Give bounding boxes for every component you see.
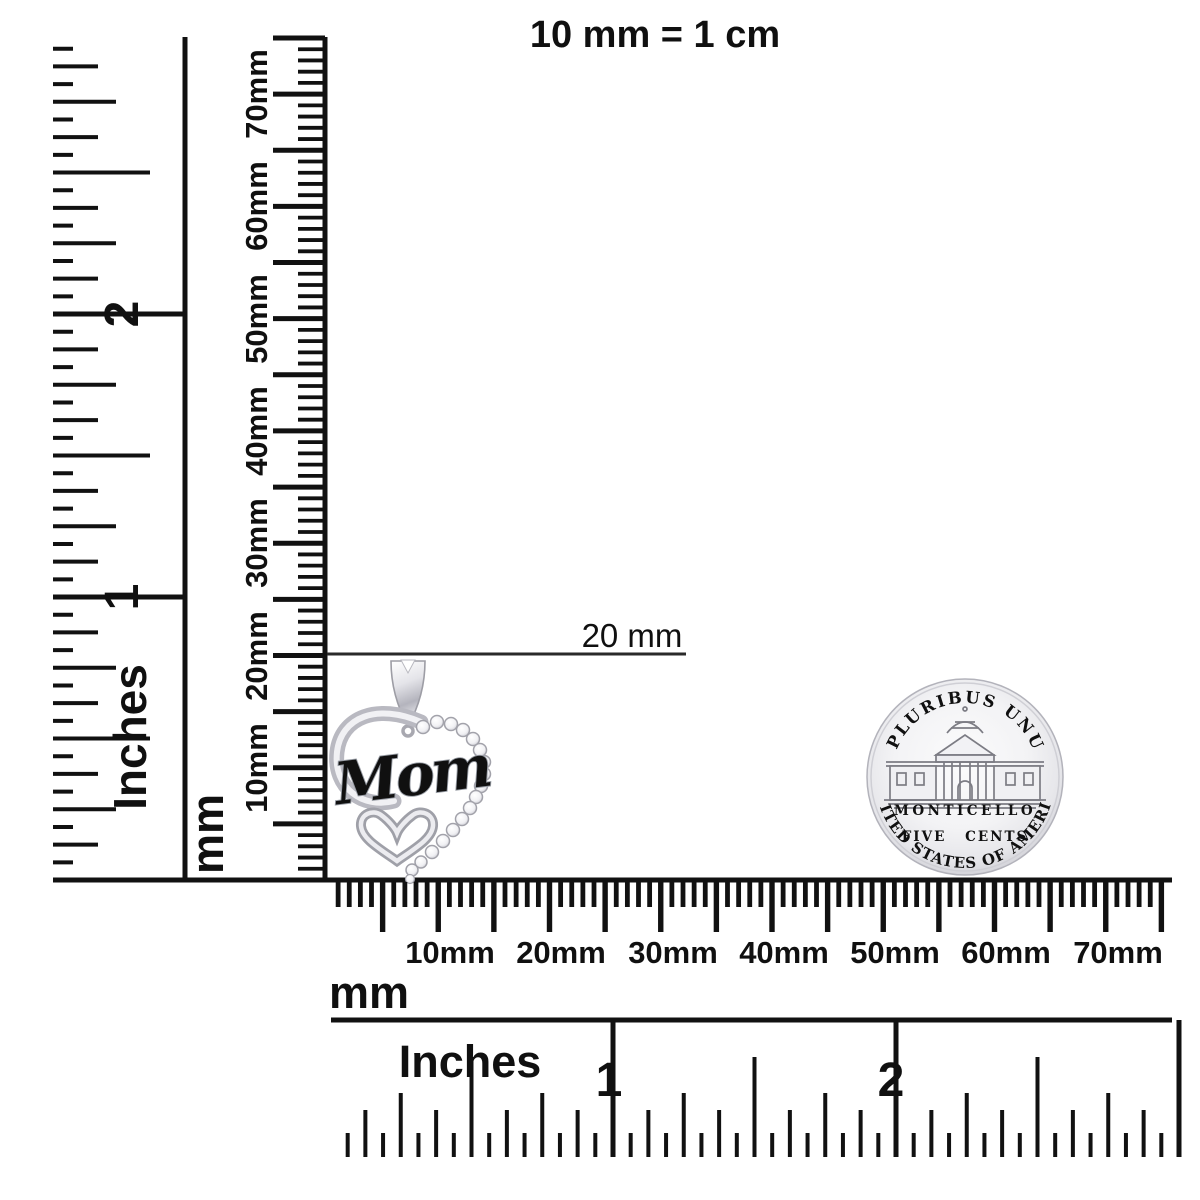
- pendant-jump-ring: [403, 726, 413, 736]
- mm-mark-40-bottom: 40mm: [739, 935, 829, 970]
- mm-mark-40-left: 40mm: [239, 386, 274, 476]
- inch-ruler-vertical: 1 2 Inches: [53, 37, 185, 880]
- mm-mark-30-left: 30mm: [239, 498, 274, 588]
- mm-ruler-vertical-ticks: [273, 38, 325, 869]
- mm-mark-20-bottom: 20mm: [516, 935, 606, 970]
- mm-mark-30-bottom: 30mm: [628, 935, 718, 970]
- inch-mark-2-left: 2: [96, 301, 149, 328]
- size-callout: 20 mm: [327, 617, 686, 654]
- mm-mark-10-bottom: 10mm: [405, 935, 495, 970]
- size-chart-canvas: 10 mm = 1 cm 1 2 Inches 10mm 20mm 30mm 4…: [0, 0, 1200, 1200]
- mm-mark-70-bottom: 70mm: [1073, 935, 1163, 970]
- mm-mark-50-left: 50mm: [239, 274, 274, 364]
- inch-unit-label-bottom: Inches: [399, 1036, 542, 1087]
- scale-title: 10 mm = 1 cm: [530, 14, 780, 56]
- mm-mark-70-left: 70mm: [239, 49, 274, 139]
- mm-mark-60-left: 60mm: [239, 161, 274, 251]
- mm-unit-label-bottom: mm: [329, 967, 409, 1018]
- mm-ruler-horizontal-ticks: [338, 882, 1161, 932]
- mm-mark-20-left: 20mm: [239, 611, 274, 701]
- inch-ruler-horizontal: 1 2 Inches: [331, 1020, 1179, 1157]
- inch-mark-2-bottom: 2: [878, 1054, 905, 1107]
- mm-mark-50-bottom: 50mm: [850, 935, 940, 970]
- size-chart-image: 10 mm = 1 cm 1 2 Inches 10mm 20mm 30mm 4…: [0, 0, 1200, 1200]
- inch-mark-1-left: 1: [96, 584, 149, 611]
- callout-label: 20 mm: [582, 617, 683, 654]
- inch-mark-1-bottom: 1: [596, 1054, 623, 1107]
- mm-ruler-horizontal: 10mm 20mm 30mm 40mm 50mm 60mm 70mm mm: [329, 882, 1163, 1018]
- coin-building-label: MONTICELLO: [894, 803, 1036, 819]
- mm-mark-10-left: 10mm: [239, 723, 274, 813]
- mm-ruler-vertical: 10mm 20mm 30mm 40mm 50mm 60mm 70mm mm: [182, 37, 325, 880]
- mm-mark-60-bottom: 60mm: [961, 935, 1051, 970]
- pendant-drop-stone: [406, 864, 418, 876]
- coin-top-legend: E PLURIBUS UNUM: [0, 0, 1048, 759]
- mm-unit-label-left: mm: [182, 794, 233, 874]
- inch-unit-label-left: Inches: [104, 664, 156, 810]
- nickel-coin: E PLURIBUS UNUM MONTICELLO FIVE CENTS UN…: [0, 0, 1063, 875]
- mom-pendant: Mom: [329, 660, 493, 884]
